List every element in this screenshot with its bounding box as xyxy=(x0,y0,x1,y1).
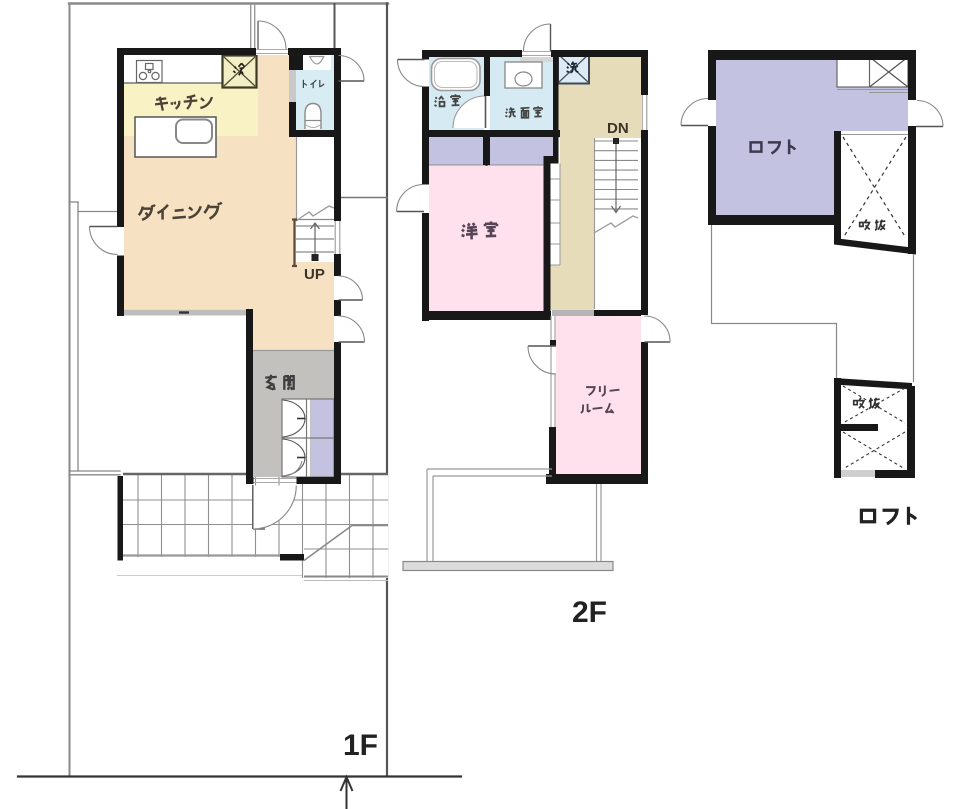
svg-text:2F: 2F xyxy=(572,596,607,629)
svg-text:UP: UP xyxy=(304,266,325,283)
svg-text:DN: DN xyxy=(607,120,629,137)
svg-text:1F: 1F xyxy=(343,729,378,762)
